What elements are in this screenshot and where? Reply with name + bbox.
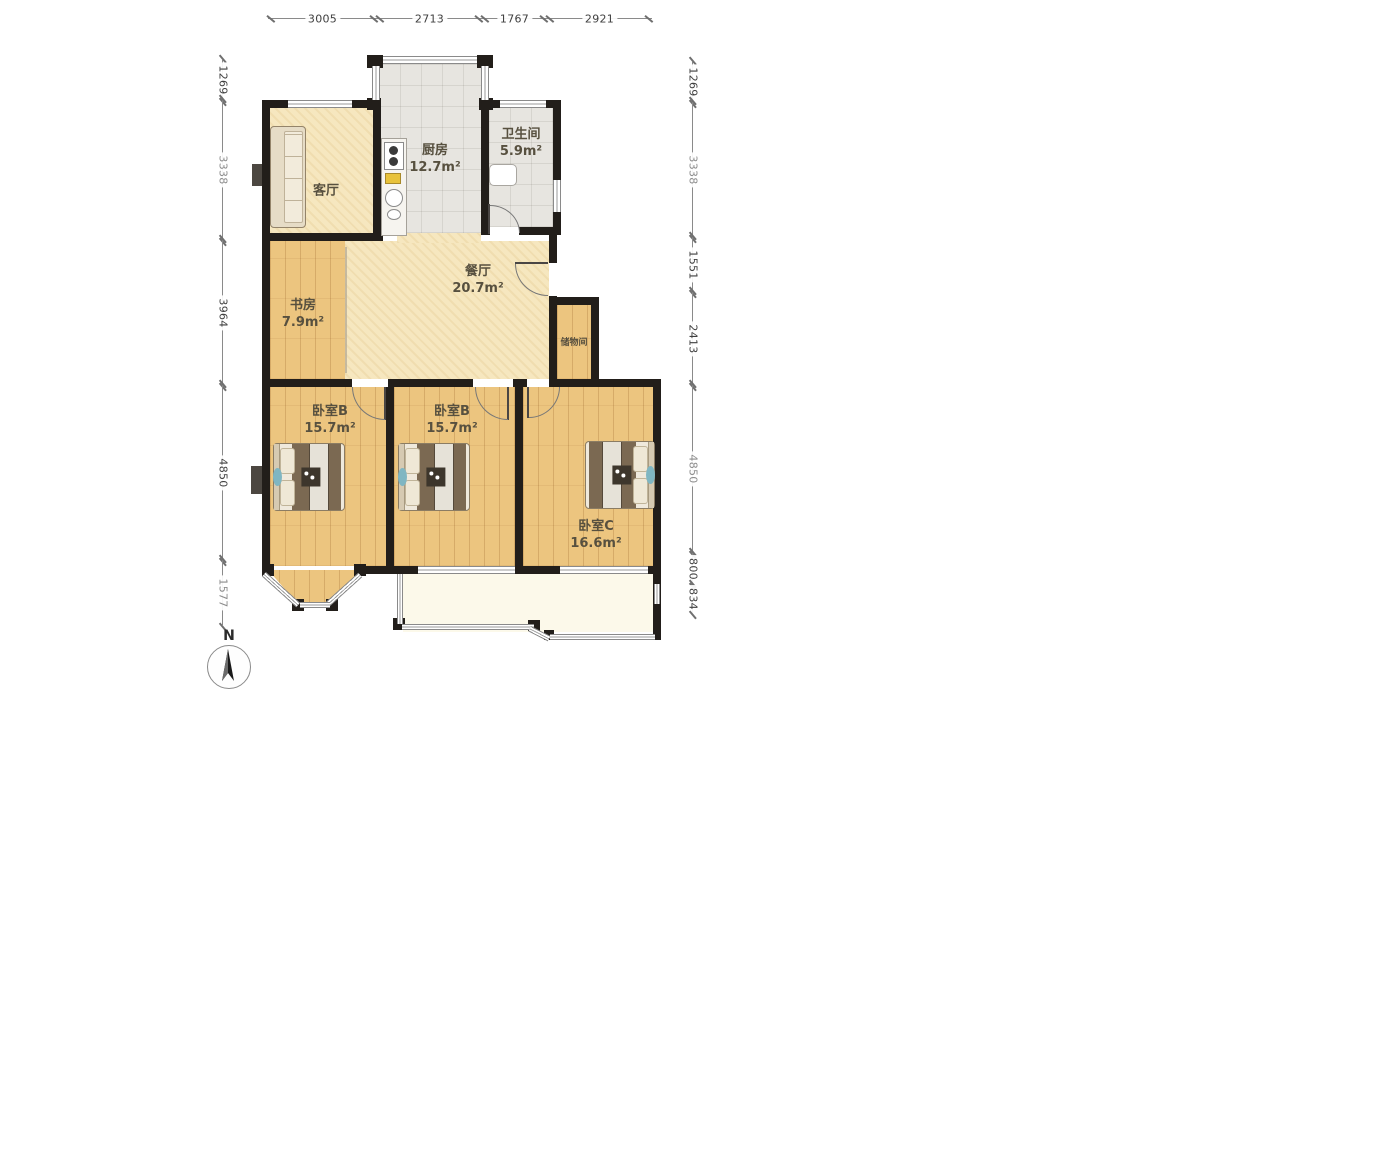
dim-right-5: 4850 <box>692 385 693 553</box>
window <box>481 66 489 100</box>
dim-right-1: 1269 <box>692 62 693 102</box>
window <box>553 180 561 212</box>
wall <box>386 387 394 566</box>
wall <box>262 379 352 387</box>
wall <box>515 387 523 566</box>
dim-left-5: 1577 <box>222 560 223 625</box>
pillow <box>633 478 648 504</box>
label-living: 客厅 <box>313 184 339 201</box>
label-kitchen: 厨房12.7m² <box>409 143 460 177</box>
dim-right-6: 800 <box>692 553 693 585</box>
wall <box>557 379 660 387</box>
quilt-icon <box>612 466 631 485</box>
dim-top-4: 2921 <box>547 18 652 19</box>
dim-right-7: 834 <box>692 585 693 613</box>
compass: N <box>203 628 255 688</box>
window <box>560 566 648 574</box>
compass-north-label: N <box>223 628 235 644</box>
kitchen-item <box>385 173 401 184</box>
bathroom-fixture <box>489 164 517 186</box>
wall-stub <box>251 466 262 494</box>
balcony-window <box>654 584 660 604</box>
wall-stub <box>252 164 262 186</box>
label-bathroom: 卫生间5.9m² <box>500 127 542 161</box>
pillow <box>405 480 420 506</box>
wall <box>373 108 381 241</box>
dim-right-2: 3338 <box>692 102 693 237</box>
wall <box>515 566 560 574</box>
pillow <box>633 446 648 472</box>
window <box>383 56 477 64</box>
pillow <box>280 480 295 506</box>
dim-left-1: 1269 <box>222 60 223 100</box>
dim-top-3: 1767 <box>482 18 547 19</box>
label-dining: 餐厅20.7m² <box>452 264 503 298</box>
dim-right-3: 1551 <box>692 237 693 292</box>
dim-top-2: 2713 <box>377 18 482 19</box>
pillow <box>405 448 420 474</box>
decor-icon <box>273 468 282 486</box>
floor-plan: 客厅 厨房12.7m² 卫生间5.9m² 餐厅20.7m² 书房7.9m² 储物… <box>0 0 760 720</box>
dim-left-3: 3964 <box>222 240 223 385</box>
decor-icon <box>646 466 655 484</box>
label-bedroom-c: 卧室C16.6m² <box>570 519 621 553</box>
balcony-window <box>397 574 403 624</box>
wall <box>388 379 473 387</box>
window <box>288 100 352 108</box>
room-dining-floor-opening <box>397 233 481 243</box>
dim-right-4: 2413 <box>692 292 693 385</box>
bed-bedroom-b2 <box>398 443 470 511</box>
decor-icon <box>398 468 407 486</box>
kettle-icon <box>387 209 401 220</box>
compass-needle-icon <box>207 645 249 687</box>
sofa-cushions <box>284 131 303 223</box>
pillow <box>280 448 295 474</box>
wall <box>513 379 527 387</box>
wall <box>549 235 557 263</box>
wall <box>591 297 599 387</box>
balcony-window <box>550 634 655 640</box>
balcony-window <box>402 624 534 630</box>
stove-icon <box>384 142 404 170</box>
wall <box>549 296 557 387</box>
bay-window <box>300 602 330 608</box>
bed-bedroom-b1 <box>273 443 345 511</box>
wall <box>262 233 383 241</box>
label-bedroom-b1: 卧室B15.7m² <box>304 404 355 438</box>
wall <box>397 566 418 574</box>
window <box>418 566 515 574</box>
quilt-icon <box>301 468 320 487</box>
study-dining-divider <box>345 247 347 373</box>
label-bedroom-b2: 卧室B15.7m² <box>426 404 477 438</box>
wall <box>262 100 270 574</box>
wall <box>553 100 561 235</box>
dim-top-1: 3005 <box>268 18 377 19</box>
sofa <box>270 126 306 228</box>
dim-left-2: 3338 <box>222 100 223 240</box>
sink-icon <box>385 189 403 207</box>
label-study: 书房7.9m² <box>282 298 324 332</box>
dim-left-4: 4850 <box>222 385 223 560</box>
bed-bedroom-c <box>585 441 655 509</box>
window <box>372 66 380 100</box>
quilt-icon <box>426 468 445 487</box>
window <box>500 100 546 108</box>
kitchen-counter <box>381 138 407 236</box>
label-storage: 储物间 <box>560 338 587 350</box>
